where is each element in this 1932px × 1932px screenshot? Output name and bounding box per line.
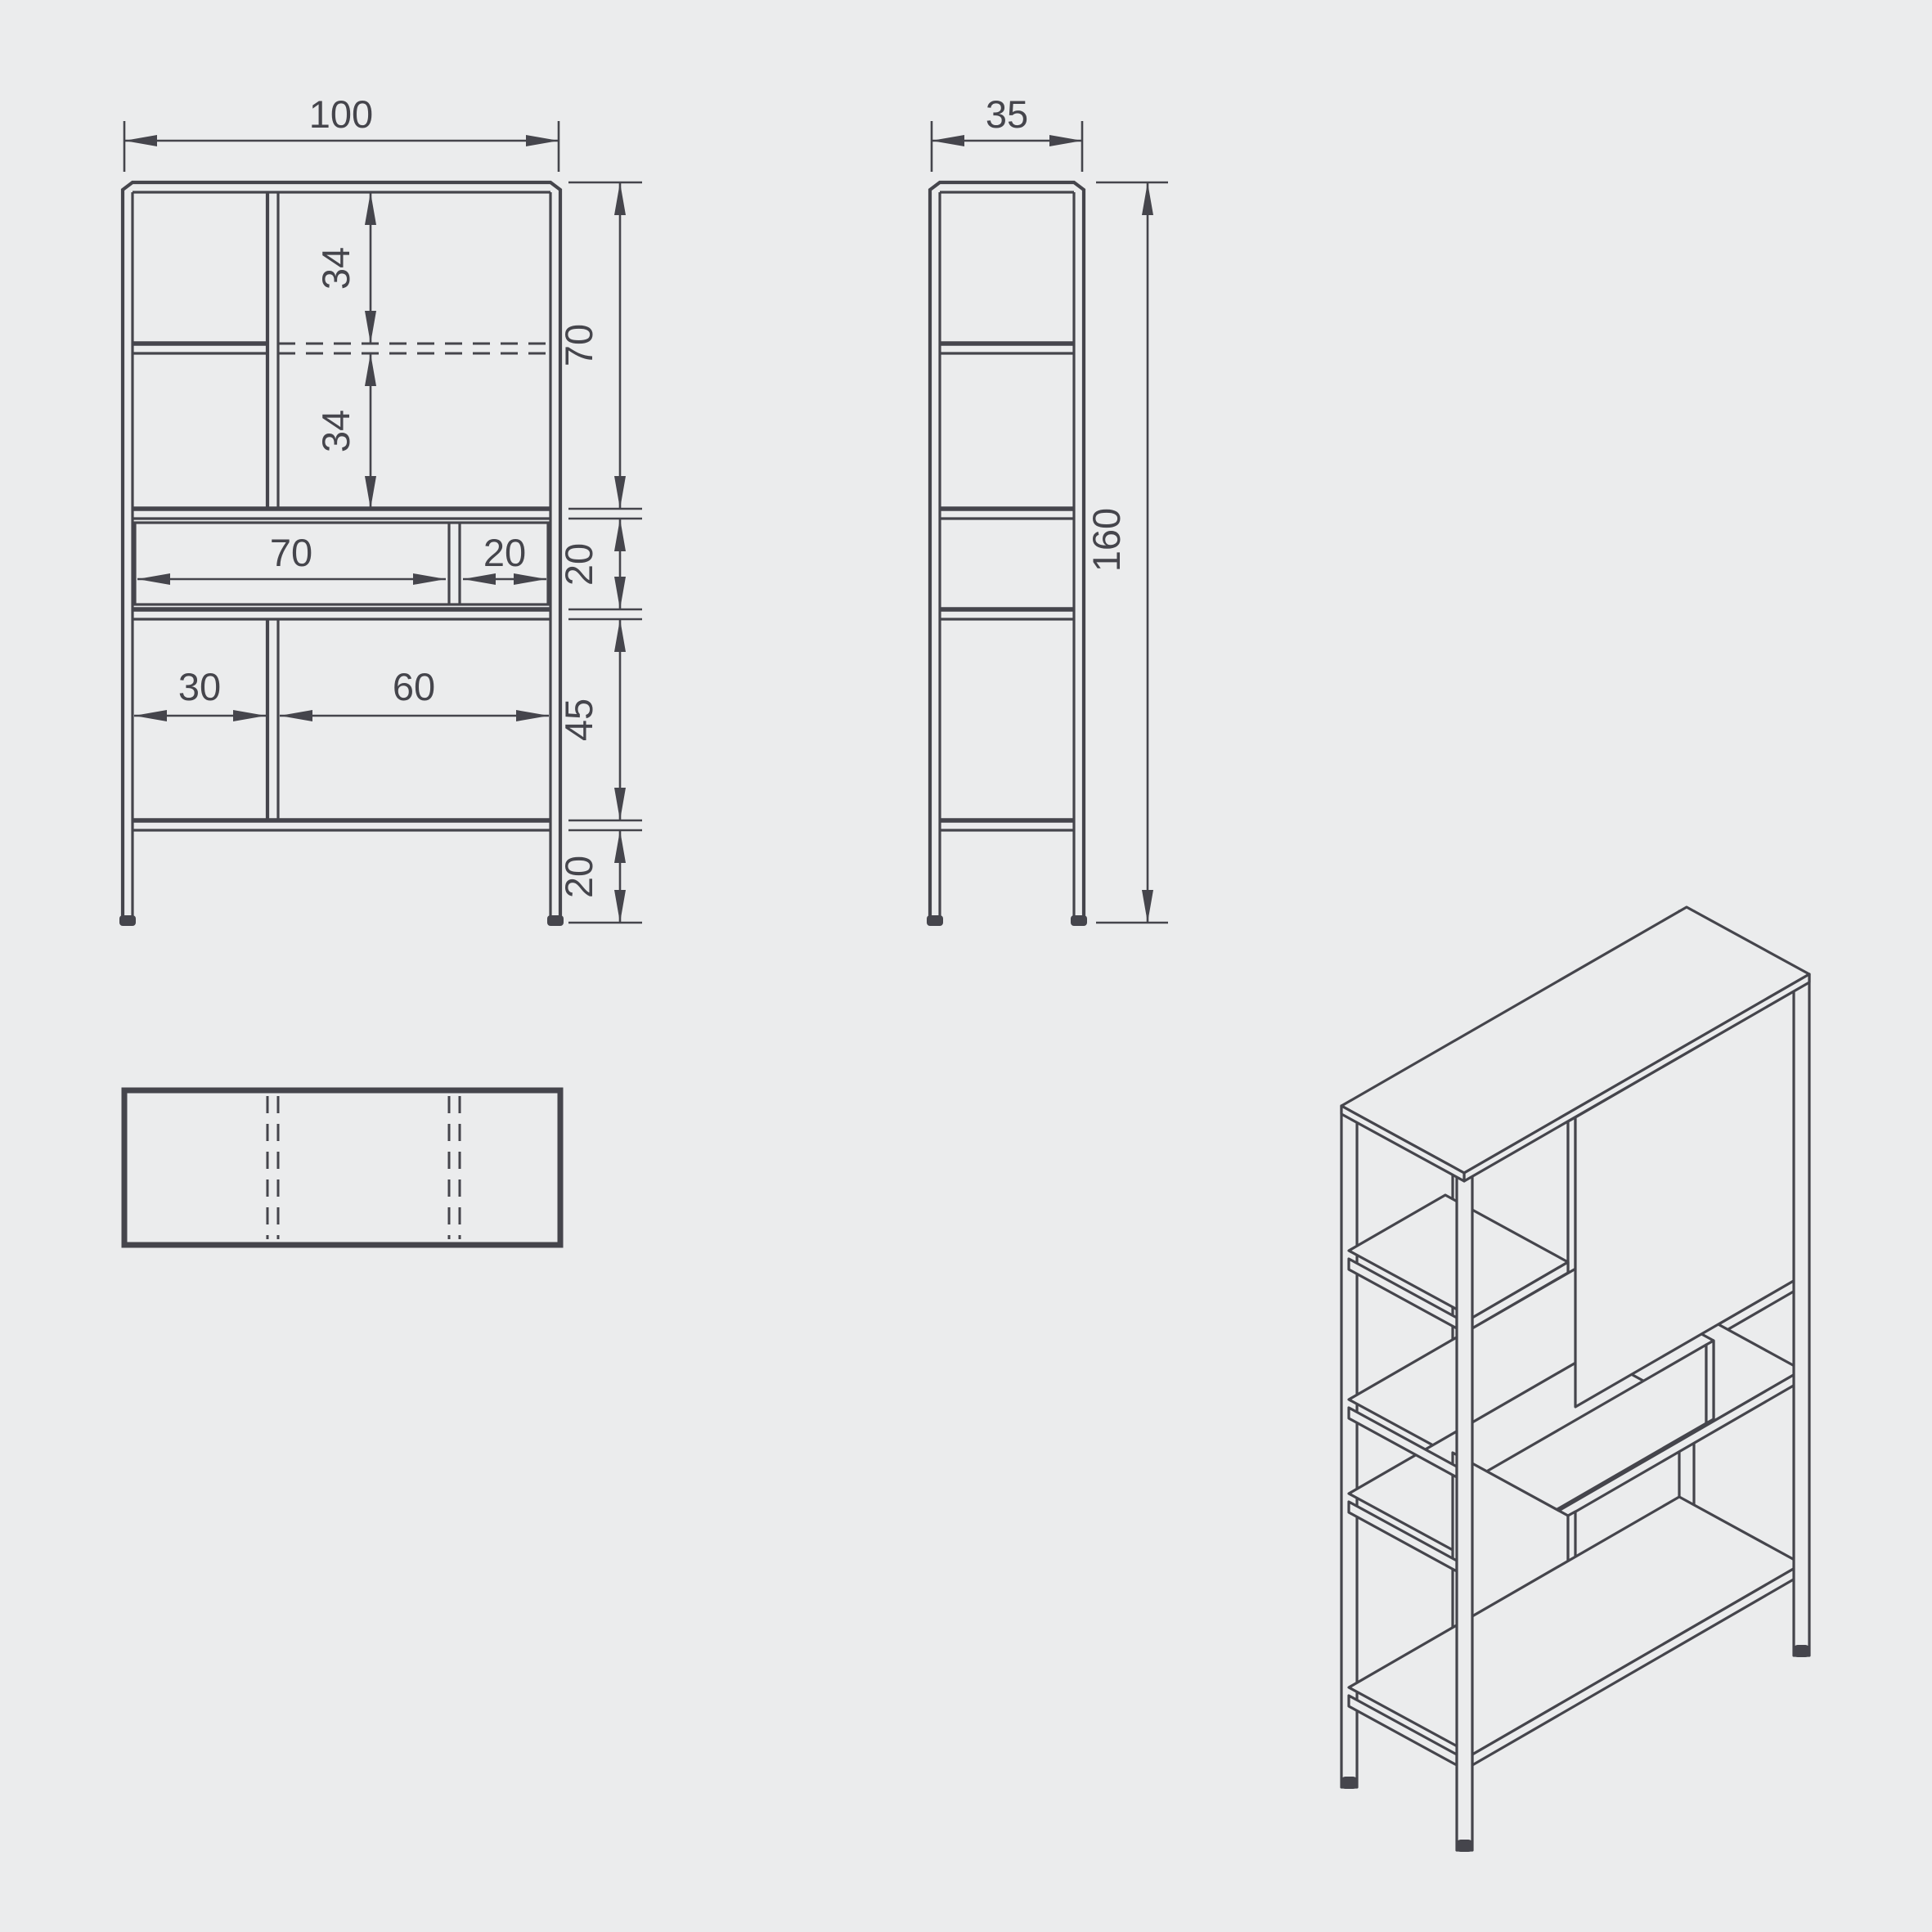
isometric-view: [1341, 907, 1810, 1852]
dim-35-label: 35: [986, 92, 1028, 136]
dim-r20b-label: 20: [557, 856, 600, 898]
iso-front-left-foot: [1456, 1840, 1473, 1852]
dim-20d-arrow-right: [514, 573, 546, 585]
dim-100-arrow-left: [124, 135, 157, 146]
dim-r20a-arrow-top: [614, 519, 626, 551]
dim-r20b-arrow-bottom: [614, 890, 626, 923]
iso-front-right-post: [1794, 974, 1809, 1656]
side-view: [927, 182, 1087, 926]
dim-r70-arrow-bottom: [614, 476, 626, 509]
dim-34l-arrow-bottom: [365, 476, 376, 509]
dim-r20b-arrow-top: [614, 830, 626, 863]
dim-35-arrow-left: [932, 135, 964, 146]
dim-160-arrow-top: [1142, 182, 1153, 215]
front-right-foot: [547, 915, 564, 926]
dim-20d-label: 20: [483, 531, 526, 574]
dim-70d-arrow-left: [137, 573, 170, 585]
technical-drawing-sheet: 100 34 34 70 20 30 60 70: [0, 0, 1932, 1932]
iso-drawer-divider-front: [1706, 1341, 1714, 1423]
dim-30-label: 30: [178, 665, 221, 708]
dim-30-arrow-left: [134, 710, 167, 721]
dim-r45-label: 45: [557, 699, 600, 741]
plan-hidden-divider1: [267, 1096, 278, 1239]
dim-r45-arrow-top: [614, 619, 626, 652]
side-left-foot: [927, 915, 943, 926]
drawing-svg: 100 34 34 70 20 30 60 70: [0, 0, 1932, 1932]
front-left-foot: [119, 915, 136, 926]
iso-front-left-post: [1457, 1169, 1472, 1850]
plan-outline: [124, 1090, 560, 1245]
dim-100-label: 100: [309, 92, 373, 136]
dim-100-arrow-right: [526, 135, 559, 146]
dim-34u-arrow-top: [365, 192, 376, 225]
dim-r70-arrow-top: [614, 182, 626, 215]
iso-front-right-foot: [1793, 1645, 1810, 1657]
dim-r70-label: 70: [557, 324, 600, 366]
dim-35-arrow-right: [1049, 135, 1082, 146]
dim-160-arrow-bottom: [1142, 890, 1153, 923]
dim-34l-label: 34: [314, 410, 357, 452]
dim-34l-arrow-top: [365, 353, 376, 386]
dim-60-arrow-right: [516, 710, 549, 721]
dim-70d-label: 70: [270, 531, 312, 574]
plan-hidden-divider2: [449, 1096, 460, 1239]
dim-r20a-arrow-bottom: [614, 577, 626, 609]
dim-20d-arrow-left: [463, 573, 496, 585]
side-outer-frame: [930, 182, 1084, 919]
dim-r45-arrow-bottom: [614, 788, 626, 820]
side-right-foot: [1071, 915, 1087, 926]
dim-70d-arrow-right: [413, 573, 446, 585]
iso-back-left-foot: [1341, 1777, 1358, 1789]
dim-60-label: 60: [393, 665, 435, 708]
plan-view: [124, 1090, 560, 1245]
dim-34u-label: 34: [314, 247, 357, 290]
dim-r20a-label: 20: [557, 543, 600, 586]
dim-34u-arrow-bottom: [365, 311, 376, 344]
dim-60-arrow-left: [280, 710, 312, 721]
dim-30-arrow-right: [233, 710, 266, 721]
dim-160-label: 160: [1085, 508, 1128, 572]
